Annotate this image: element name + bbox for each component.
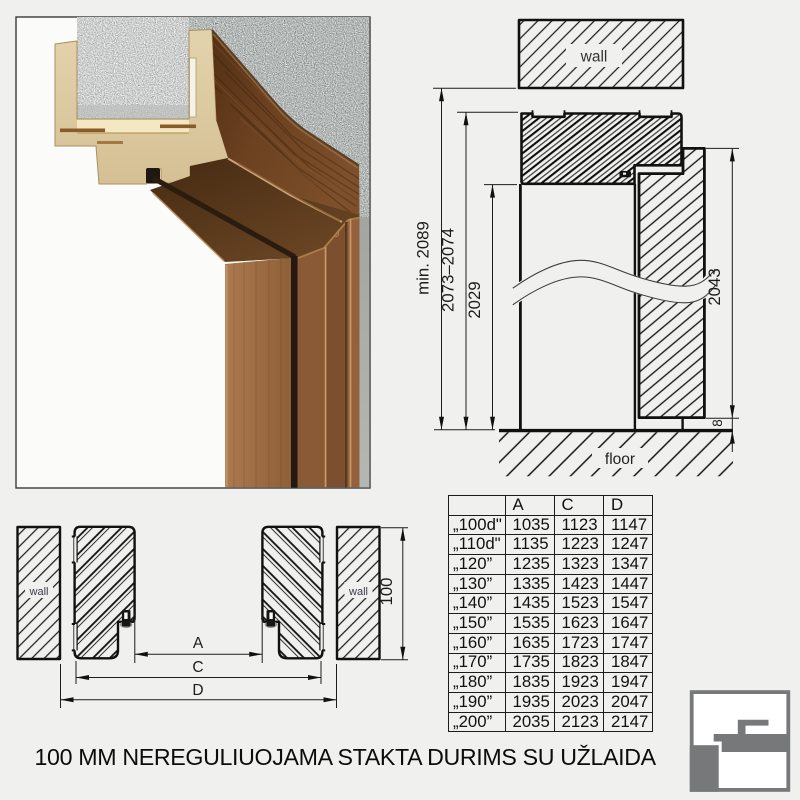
svg-text:wall: wall — [348, 586, 368, 598]
svg-text:8: 8 — [710, 419, 725, 427]
svg-text:2029: 2029 — [465, 281, 484, 318]
svg-text:A: A — [193, 635, 204, 652]
svg-text:min. 2089: min. 2089 — [414, 221, 433, 295]
svg-text:floor: floor — [605, 451, 635, 468]
svg-text:100: 100 — [377, 578, 396, 606]
svg-text:wall: wall — [29, 586, 49, 598]
svg-text:C: C — [192, 659, 203, 676]
svg-text:2043: 2043 — [705, 268, 724, 305]
svg-text:wall: wall — [580, 49, 608, 66]
svg-text:D: D — [192, 682, 203, 699]
svg-text:2073–2074: 2073–2074 — [439, 228, 458, 312]
